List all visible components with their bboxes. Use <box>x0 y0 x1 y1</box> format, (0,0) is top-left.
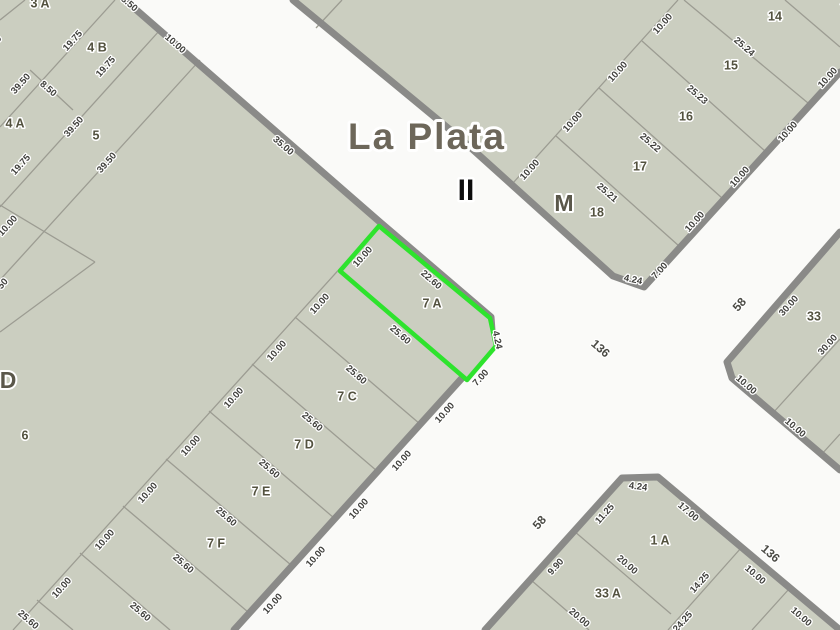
parcel-label: 33 A <box>595 586 621 600</box>
cadastral-map-view[interactable]: La PlataIIMD58581361363 A4 B4 A567 A7 C7… <box>0 0 840 630</box>
parcel-label: 7 F <box>207 536 225 550</box>
block-letter-m: M <box>554 190 573 216</box>
parcel-label: 3 A <box>31 0 50 10</box>
parcel-label: 1 A <box>651 533 670 547</box>
street-136: 136 <box>588 337 613 361</box>
parcel-label: 7 C <box>337 389 356 403</box>
section-label: II <box>458 174 475 207</box>
parcel-label: 14 <box>768 9 782 23</box>
parcel-label: 18 <box>590 205 604 219</box>
street-58: 58 <box>730 295 750 315</box>
parcel-label: 16 <box>679 109 693 123</box>
street-58: 58 <box>530 513 550 533</box>
block-letter-d: D <box>0 367 16 393</box>
parcel-label: 7 E <box>252 484 271 498</box>
parcel-label: 4 A <box>6 116 25 130</box>
city-title: La Plata <box>348 116 506 157</box>
parcel-label: 33 <box>807 309 821 323</box>
parcel-label: 5 <box>93 128 100 142</box>
cadastral-map-canvas[interactable]: La PlataIIMD58581361363 A4 B4 A567 A7 C7… <box>0 0 840 630</box>
parcel-label: 17 <box>633 159 647 173</box>
parcel-label: 7 A <box>423 296 442 310</box>
parcel-label: 6 <box>22 428 29 442</box>
parcel-label: 4 B <box>87 40 106 54</box>
parcel-label: 7 D <box>294 437 313 451</box>
parcel-label: 15 <box>724 58 738 72</box>
